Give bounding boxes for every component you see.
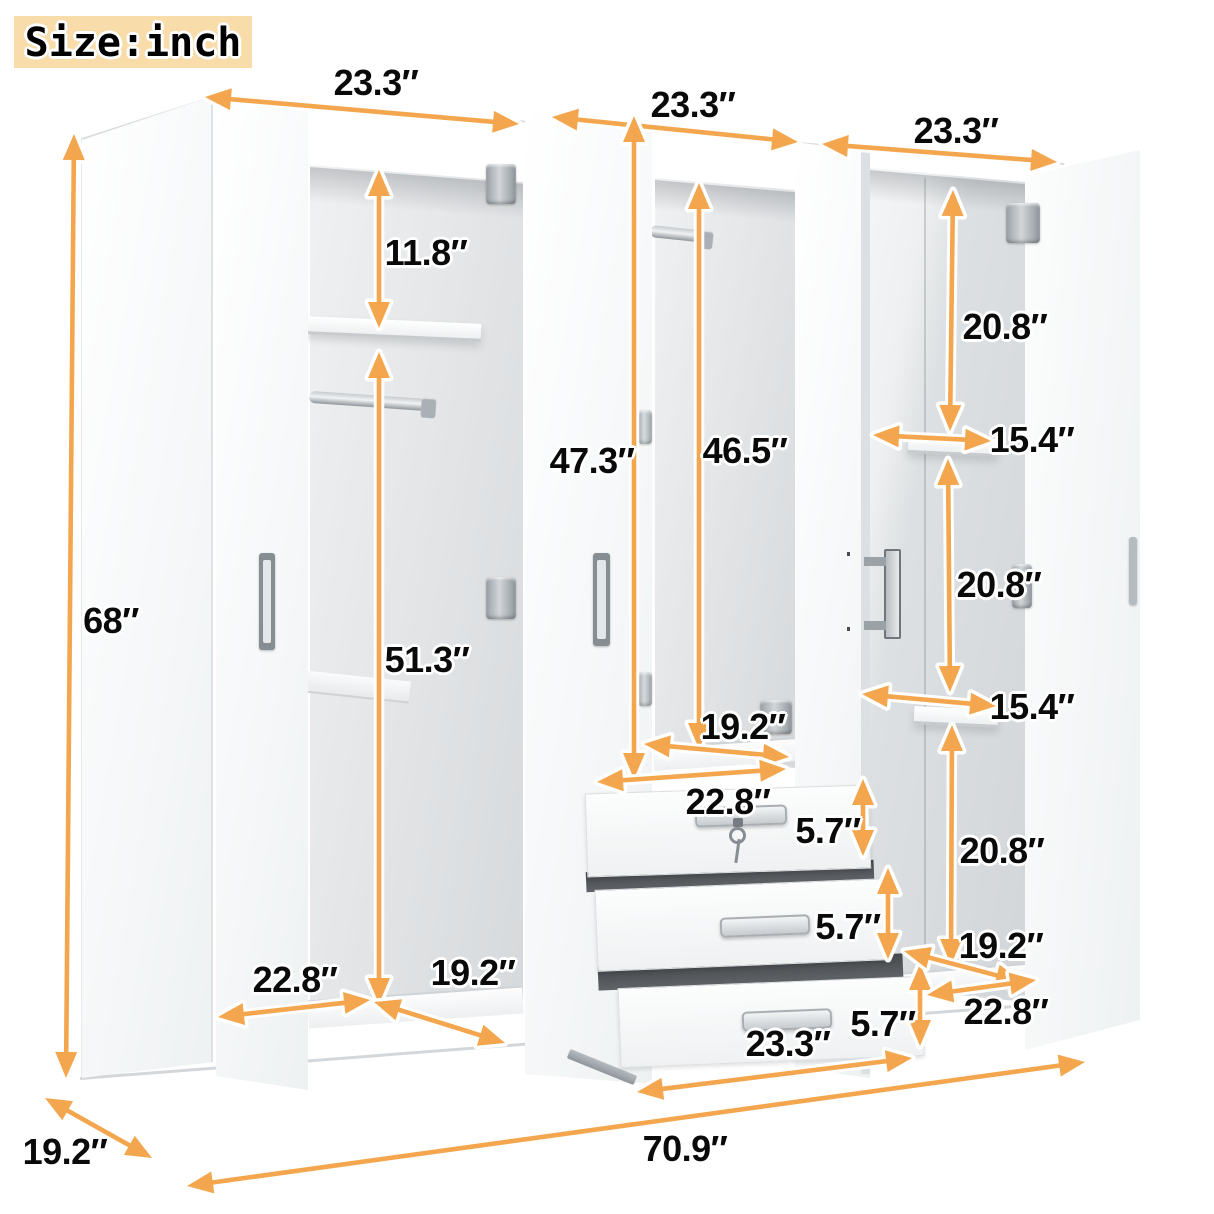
hinge-middle-door-lower — [638, 672, 652, 706]
drawer-lock — [733, 818, 743, 827]
size-unit-badge: Size:inch — [14, 16, 252, 68]
door-rightmost-handle — [1129, 537, 1137, 605]
door-right-section-handle-bar — [884, 549, 901, 639]
right-shelf-upper — [908, 435, 999, 457]
hinge-left-top — [486, 164, 516, 204]
hinge-middle-door-upper — [638, 410, 652, 444]
door-rightmost — [1025, 148, 1140, 1052]
right-shelf-lower — [914, 706, 999, 728]
middle-rod-bracket — [699, 230, 714, 249]
door-right-section-handle-arm-bottom — [864, 621, 886, 630]
door-screw-dot-bottom — [847, 627, 850, 631]
dim-label-w1: 23.3″ — [334, 62, 419, 104]
hinge-middle-divider — [760, 700, 792, 734]
drawer-middle-handle — [720, 914, 811, 938]
drawer-top — [585, 785, 871, 878]
right-back-corner-line — [924, 178, 926, 978]
door-right-section-handle-arm-top — [864, 557, 886, 566]
dim-label-w709: 70.9″ — [643, 1128, 728, 1170]
dim-label-depth: 19.2″ — [23, 1131, 108, 1173]
dim-arrow-depth — [45, 1098, 152, 1158]
middle-compartment-interior — [655, 176, 795, 768]
door-left-open-handle-inner — [263, 560, 271, 643]
hinge-right-wall — [1012, 564, 1032, 608]
door-left-closed — [82, 96, 213, 1078]
left-rod-bracket — [420, 398, 436, 419]
wardrobe-dimension-diagram: 23.3″23.3″23.3″68″11.8″51.3″47.3″46.5″19… — [0, 0, 1214, 1214]
dim-label-w2: 23.3″ — [651, 84, 736, 126]
door-middle-left-handle-inner — [597, 560, 606, 639]
dim-label-w3: 23.3″ — [914, 110, 999, 152]
drawer-bottom-handle — [742, 1008, 833, 1032]
door-screw-dot-top — [847, 552, 850, 556]
door-left-closed-edge — [211, 96, 213, 1062]
hinge-rightmost-door — [1006, 203, 1040, 243]
hinge-left-middle — [486, 577, 516, 619]
